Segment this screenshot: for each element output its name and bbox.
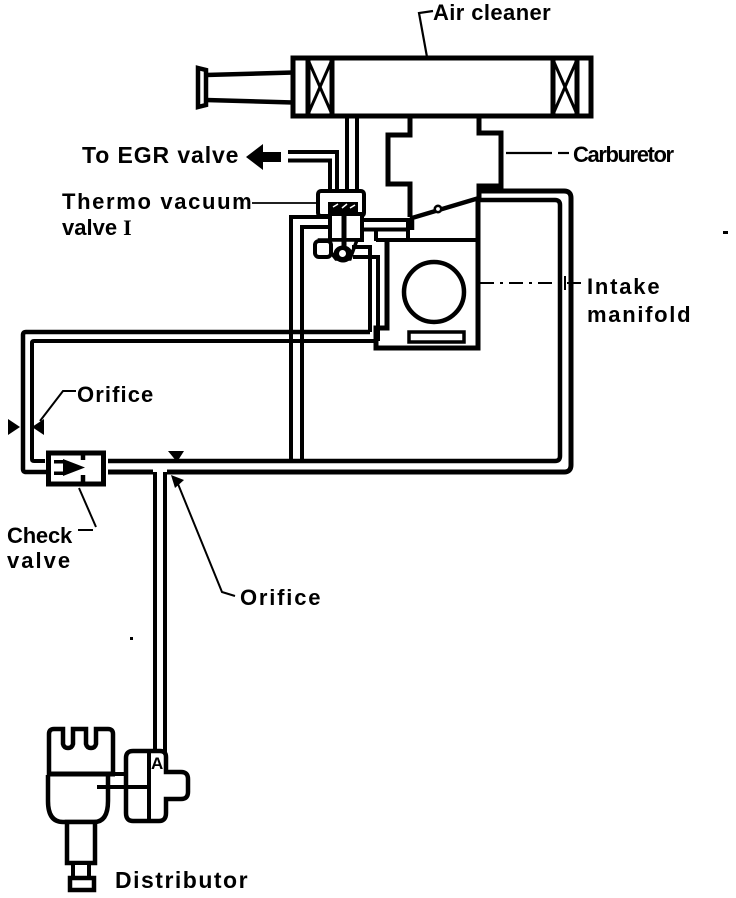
svg-text:Thermo vacuum: Thermo vacuum [62,189,253,214]
svg-text:valve I: valve I [62,215,132,240]
svg-text:valve: valve [7,548,72,573]
svg-text:Check: Check [7,523,73,548]
svg-text:Intake: Intake [587,274,661,299]
svg-text:A: A [151,754,163,773]
svg-text:Orifice: Orifice [77,382,154,407]
svg-text:Carburetor: Carburetor [573,142,675,167]
svg-text:Distributor: Distributor [115,867,249,893]
svg-text:To EGR valve: To EGR valve [82,142,239,168]
svg-text:manifold: manifold [587,302,692,327]
svg-text:Air cleaner: Air cleaner [433,0,551,25]
svg-text:Orifice: Orifice [240,585,322,610]
